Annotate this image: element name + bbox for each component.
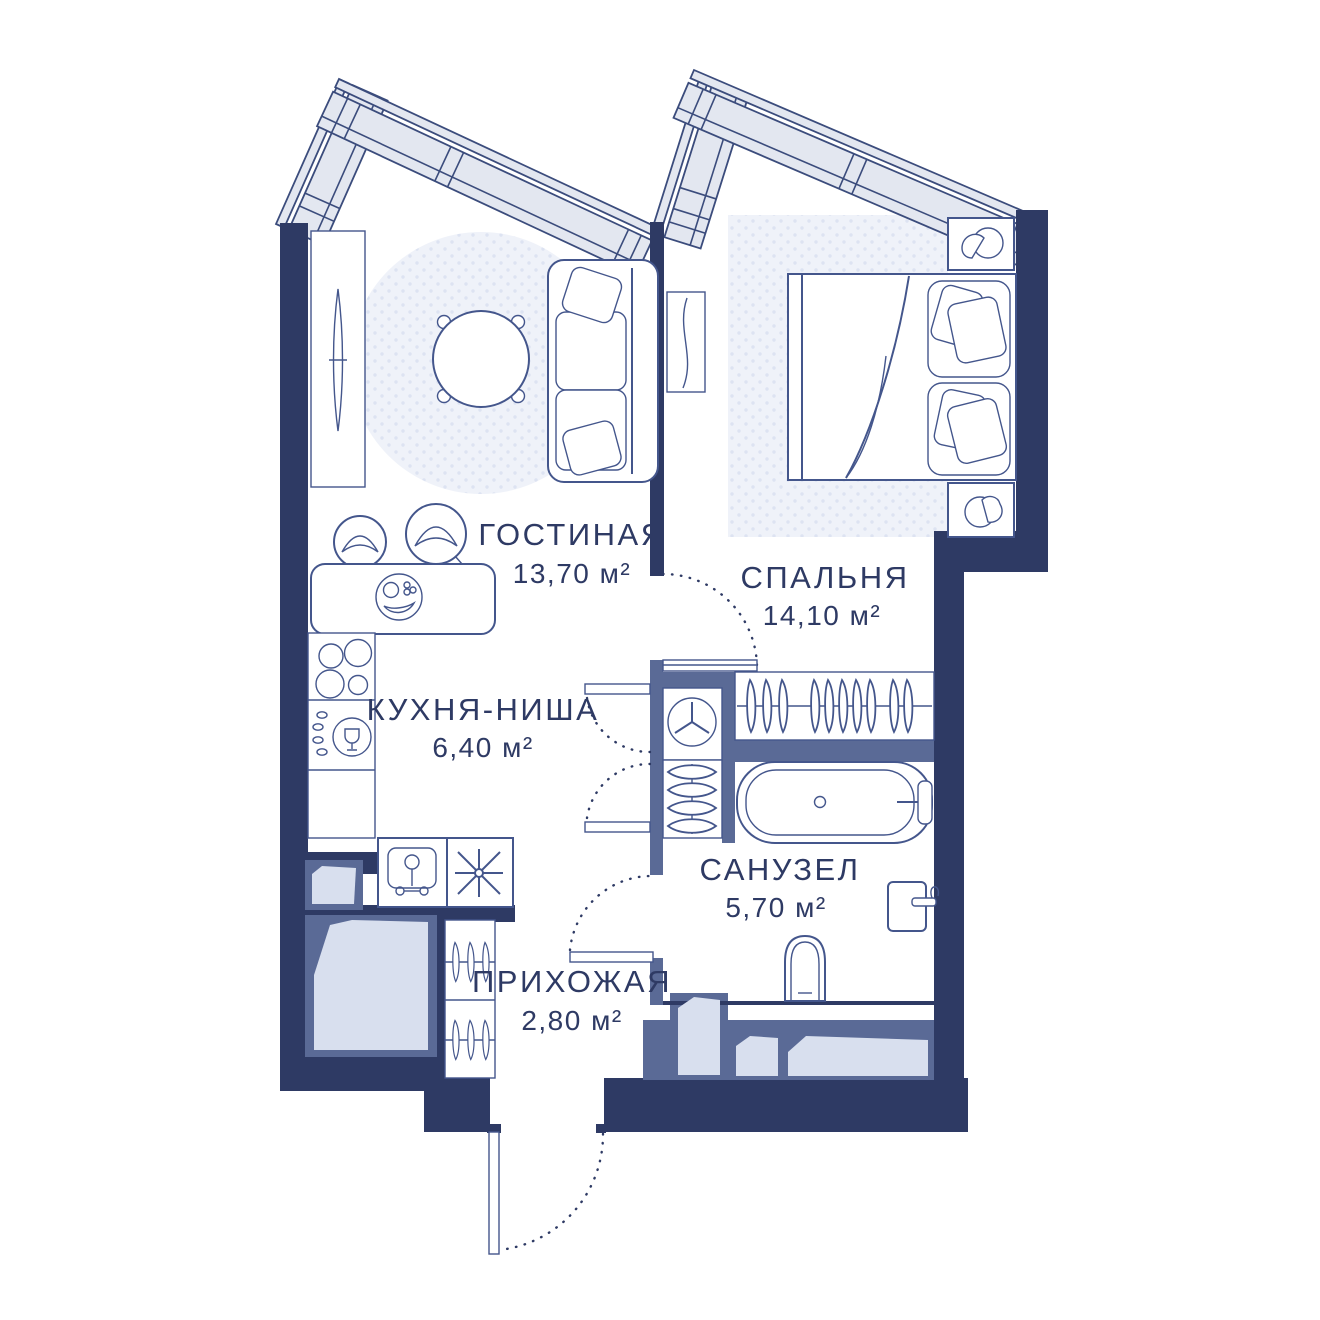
bathroom-door-swing-icon [570,876,653,962]
bar-counter-icon [311,564,495,634]
room-name-bedroom: СПАЛЬНЯ [741,560,910,595]
sofa-icon [548,260,658,482]
hall-wardrobe-hangers-icon [445,920,495,1078]
fruit-plate-icon [376,574,422,620]
room-name-living: ГОСТИНАЯ [478,517,665,552]
room-label-living: ГОСТИНАЯ 13,70 м² [478,517,665,589]
nightstand-lamp-icon [948,483,1014,537]
toilet-icon [785,936,825,1001]
room-label-kitchen: КУХНЯ-НИША 6,40 м² [367,692,600,763]
room-name-hallway: ПРИХОЖАЯ [472,964,672,999]
curtain-panel-icon [667,292,705,392]
pocket-door-icon [663,660,757,671]
room-area-kitchen: 6,40 м² [432,732,533,763]
nightstand-lamp-icon [948,218,1014,270]
room-area-bedroom: 14,10 м² [763,600,881,631]
wardrobe-hangers-icon [735,672,934,740]
washing-machine-icon [663,688,722,760]
washbasin-icon [888,882,938,931]
bar-stool-icon [406,504,466,564]
room-label-hallway: ПРИХОЖАЯ 2,80 м² [472,964,672,1036]
floor-plan-page: ГОСТИНАЯ 13,70 м² СПАЛЬНЯ 14,10 м² КУХНЯ… [0,0,1320,1320]
floor-plan-canvas: ГОСТИНАЯ 13,70 м² СПАЛЬНЯ 14,10 м² КУХНЯ… [0,0,1320,1320]
folded-linen-icon [663,760,722,838]
kitchen-counter-strip [308,633,375,838]
bar-stool-icon [334,516,386,568]
room-area-living: 13,70 м² [513,558,631,589]
room-label-bathroom: САНУЗЕЛ 5,70 м² [699,852,860,923]
room-area-hallway: 2,80 м² [521,1005,622,1036]
entry-door-icon[interactable] [489,1132,603,1254]
star-burst-icon [455,849,503,897]
bathtub-icon [737,762,932,843]
room-area-bathroom: 5,70 м² [725,892,826,923]
room-name-kitchen: КУХНЯ-НИША [367,692,600,727]
bed-icon [788,274,1016,480]
tv-console-icon [311,231,365,487]
room-label-bedroom: СПАЛЬНЯ 14,10 м² [741,560,910,631]
kitchen-bottom-counter [378,838,513,907]
round-table-icon [433,311,529,407]
room-name-bathroom: САНУЗЕЛ [699,852,860,887]
